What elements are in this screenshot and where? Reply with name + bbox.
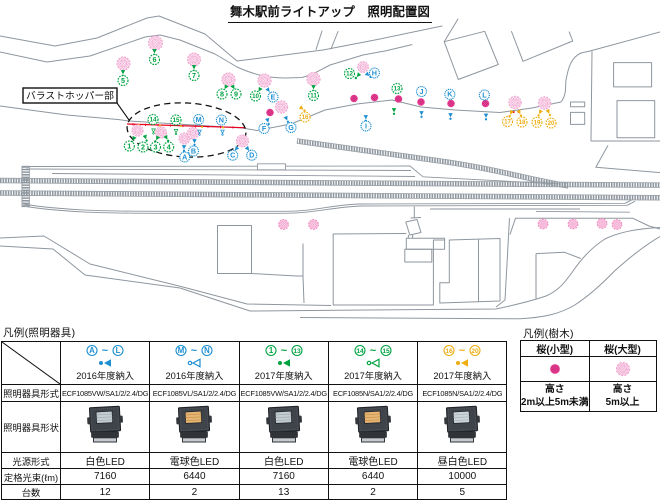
svg-text:14: 14 xyxy=(356,349,364,356)
svg-text:L: L xyxy=(116,347,121,356)
svg-text:11: 11 xyxy=(310,93,317,100)
svg-text:2: 2 xyxy=(141,142,145,151)
svg-text:B: B xyxy=(191,146,196,155)
svg-text:K: K xyxy=(447,90,453,99)
svg-text:13: 13 xyxy=(293,349,301,356)
svg-text:C: C xyxy=(230,151,235,160)
svg-text:E: E xyxy=(271,92,276,101)
svg-text:16: 16 xyxy=(446,349,454,356)
svg-text:N: N xyxy=(219,115,224,124)
svg-text:~: ~ xyxy=(370,345,377,357)
svg-text:G: G xyxy=(288,123,294,132)
svg-text:バラストホッパー部: バラストホッパー部 xyxy=(26,90,114,102)
svg-text:A: A xyxy=(182,152,187,161)
svg-text:5: 5 xyxy=(121,76,125,85)
svg-text:20: 20 xyxy=(548,120,555,127)
svg-text:20: 20 xyxy=(472,349,480,356)
svg-text:3: 3 xyxy=(154,142,158,151)
svg-text:I: I xyxy=(365,121,367,130)
svg-text:F: F xyxy=(262,124,267,133)
svg-text:12: 12 xyxy=(346,71,353,78)
svg-text:17: 17 xyxy=(504,119,511,126)
svg-text:18: 18 xyxy=(519,119,526,126)
svg-text:A: A xyxy=(89,347,95,356)
svg-text:4: 4 xyxy=(167,142,171,151)
svg-text:14: 14 xyxy=(150,117,157,124)
svg-text:J: J xyxy=(420,87,424,96)
svg-text:15: 15 xyxy=(173,117,180,124)
svg-text:6: 6 xyxy=(153,55,157,64)
svg-text:13: 13 xyxy=(394,86,401,93)
svg-text:1: 1 xyxy=(269,347,274,356)
svg-text:M: M xyxy=(196,115,202,124)
svg-text:M: M xyxy=(178,347,185,356)
svg-text:~: ~ xyxy=(281,345,288,357)
svg-text:19: 19 xyxy=(534,120,541,127)
svg-text:16: 16 xyxy=(302,114,309,121)
svg-text:8: 8 xyxy=(220,89,224,98)
svg-text:~: ~ xyxy=(102,345,109,357)
svg-text:15: 15 xyxy=(382,349,390,356)
svg-text:L: L xyxy=(482,90,487,99)
svg-text:N: N xyxy=(205,347,211,356)
svg-text:D: D xyxy=(249,151,254,160)
svg-text:10: 10 xyxy=(252,93,259,100)
svg-text:H: H xyxy=(372,68,377,77)
svg-text:1: 1 xyxy=(127,141,131,150)
svg-text:7: 7 xyxy=(192,71,196,80)
svg-text:~: ~ xyxy=(459,345,466,357)
svg-text:~: ~ xyxy=(191,345,198,357)
svg-text:9: 9 xyxy=(234,89,238,98)
